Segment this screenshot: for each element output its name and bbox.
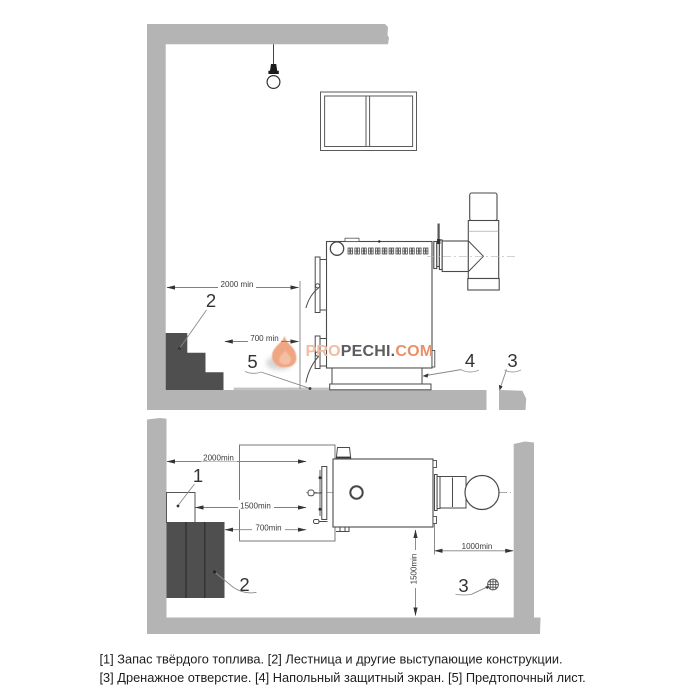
svg-text:1500min: 1500min [410, 554, 419, 585]
svg-text:1: 1 [193, 465, 203, 486]
svg-text:2: 2 [206, 290, 216, 311]
svg-text:1000min: 1000min [462, 542, 493, 551]
svg-text:4: 4 [465, 350, 475, 371]
svg-text:PROPECHI.COM: PROPECHI.COM [306, 343, 434, 360]
svg-text:5: 5 [247, 351, 257, 372]
svg-text:700min: 700min [255, 524, 281, 533]
svg-text:3: 3 [458, 575, 468, 596]
svg-text:[3] Дренажное отверстие. [4] Н: [3] Дренажное отверстие. [4] Напольный з… [100, 670, 586, 685]
svg-text:700 min: 700 min [250, 334, 278, 343]
svg-text:2000min: 2000min [203, 454, 234, 463]
svg-text:3: 3 [507, 350, 517, 371]
svg-text:1500min: 1500min [240, 502, 271, 511]
svg-text:2000 min: 2000 min [221, 280, 254, 289]
svg-text:[1] Запас твёрдого топлива. [2: [1] Запас твёрдого топлива. [2] Лестница… [100, 652, 563, 667]
